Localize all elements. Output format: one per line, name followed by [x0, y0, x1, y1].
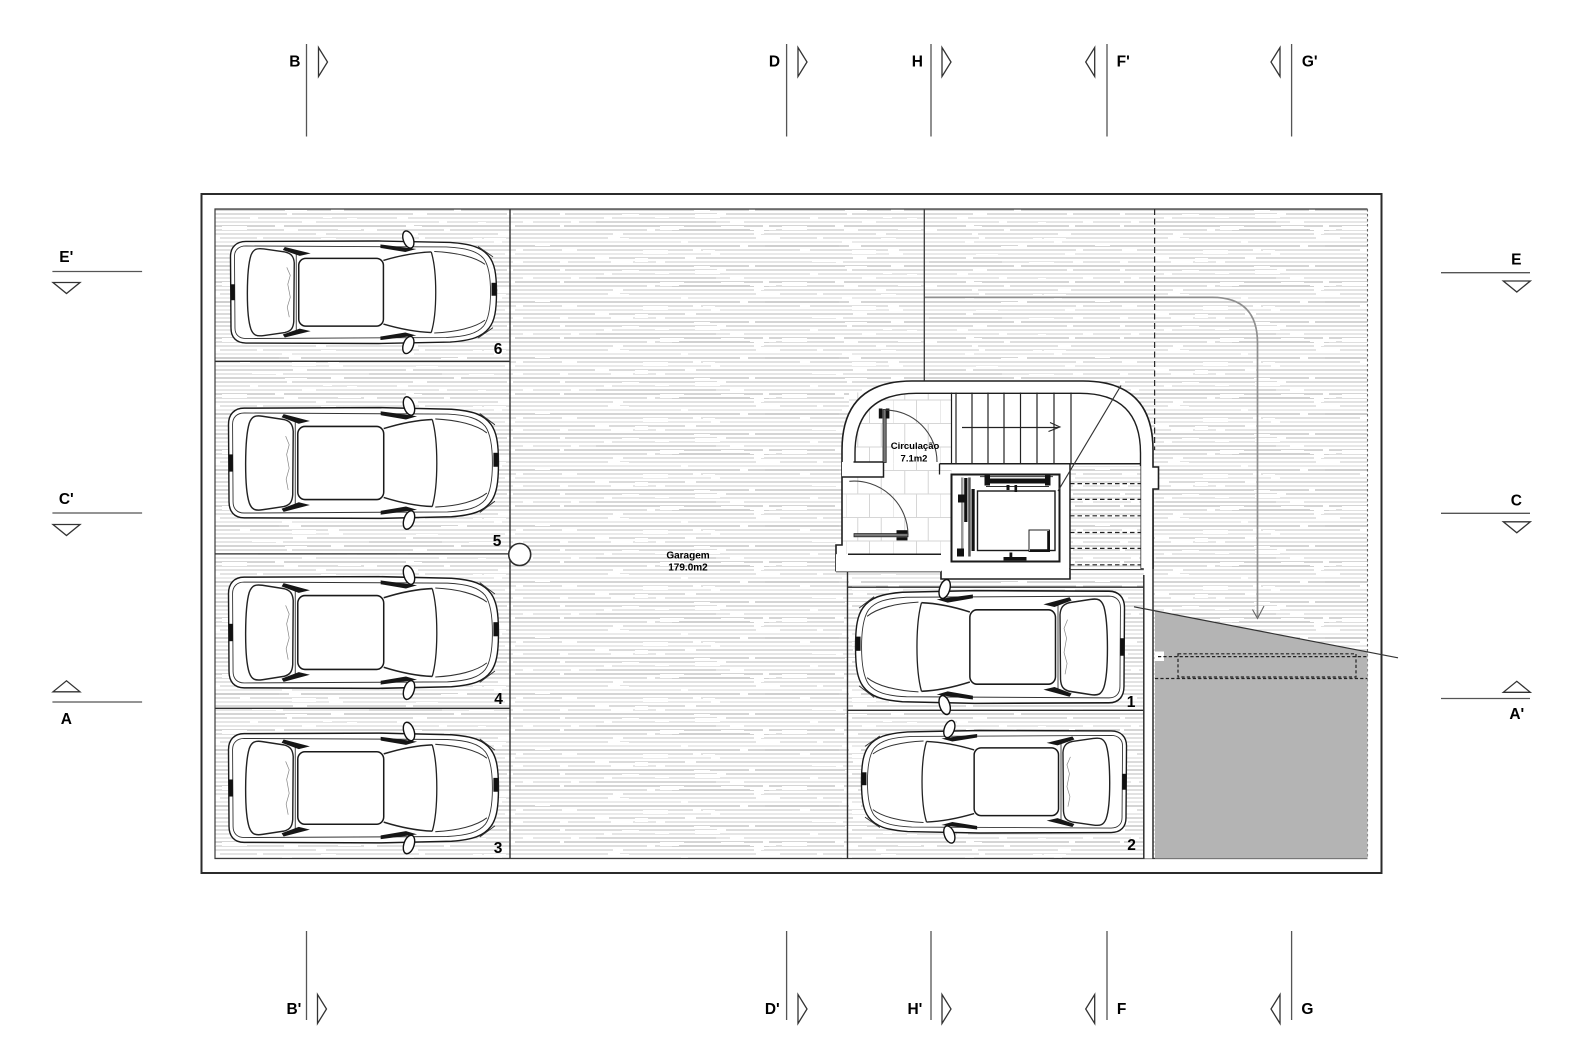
- svg-text:A: A: [61, 711, 72, 728]
- svg-text:3: 3: [494, 840, 503, 857]
- svg-text:B': B': [286, 1001, 301, 1018]
- svg-text:Circulação: Circulação: [891, 441, 940, 452]
- svg-text:1: 1: [1127, 694, 1136, 711]
- svg-text:G': G': [1302, 54, 1318, 71]
- svg-text:7.1m2: 7.1m2: [901, 454, 928, 465]
- svg-text:G: G: [1301, 1001, 1313, 1018]
- svg-text:H': H': [907, 1001, 922, 1018]
- svg-text:C': C': [59, 491, 74, 508]
- svg-text:5: 5: [493, 533, 502, 550]
- svg-text:E: E: [1511, 252, 1521, 269]
- svg-text:179.0m2: 179.0m2: [668, 563, 708, 574]
- svg-text:A': A': [1509, 706, 1524, 723]
- svg-text:D': D': [765, 1001, 780, 1018]
- svg-text:E': E': [59, 249, 73, 266]
- svg-text:D: D: [769, 54, 780, 71]
- svg-text:F': F': [1117, 54, 1130, 71]
- svg-text:F: F: [1117, 1001, 1126, 1018]
- svg-text:Garagem: Garagem: [666, 551, 709, 562]
- svg-text:4: 4: [494, 691, 503, 708]
- svg-text:H: H: [912, 54, 923, 71]
- svg-text:C: C: [1511, 493, 1522, 510]
- svg-text:B: B: [289, 54, 300, 71]
- svg-text:2: 2: [1127, 837, 1136, 854]
- svg-text:6: 6: [494, 341, 503, 358]
